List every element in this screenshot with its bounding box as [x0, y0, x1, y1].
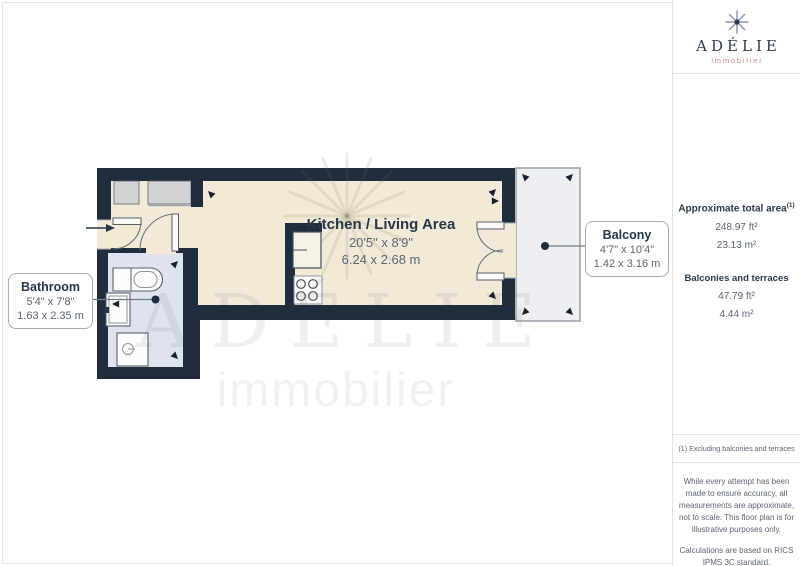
balcony-label: Balcony 4'7" x 10'4" 1.42 x 3.16 m — [585, 221, 669, 277]
brand-name: ADÉLIE — [692, 37, 781, 55]
room-dims-ft: 4'7" x 10'4" — [589, 243, 665, 257]
disclaimer: While every attempt has been made to ens… — [678, 476, 795, 536]
hob — [294, 276, 322, 304]
room-dims-m: 1.63 x 2.35 m — [12, 309, 89, 323]
bathtub — [113, 268, 163, 291]
room-dims-m: 1.42 x 3.16 m — [589, 257, 665, 271]
room-dims-ft: 5'4" x 7'8" — [12, 295, 89, 309]
floorplan-page: ADÉLIE immobilier Kitchen / Living Area … — [0, 0, 800, 566]
total-area-ft: 248.97 ft² — [715, 222, 757, 233]
sink-vanity — [104, 293, 130, 326]
room-dims-m: 6.24 x 2.68 m — [281, 251, 481, 268]
footnote-text: (1) Excluding balconies and terraces — [678, 444, 794, 453]
room-dims-ft: 20'5" x 8'9" — [281, 234, 481, 251]
closet-left — [114, 181, 139, 204]
footnote-ref: (1) — [787, 202, 795, 209]
balconies-ft: 47.79 ft² — [718, 291, 755, 302]
footnote: (1) Excluding balconies and terraces — [673, 435, 800, 463]
room-name: Kitchen / Living Area — [281, 215, 481, 234]
bathroom-label-dot — [152, 296, 160, 304]
bathroom-label: Bathroom 5'4" x 7'8" 1.63 x 2.35 m — [8, 273, 93, 329]
floorplan — [0, 0, 672, 566]
room-name: Bathroom — [12, 279, 89, 295]
balconies-m: 4.44 m² — [720, 309, 754, 320]
logo: ADÉLIE immobilier — [673, 0, 800, 74]
total-area-m: 23.13 m² — [717, 240, 756, 251]
snowflake-icon — [724, 9, 750, 35]
entry-door-leaf — [113, 218, 141, 225]
closet-right — [148, 181, 191, 204]
balcony-label-dot — [541, 242, 549, 250]
room-name: Balcony — [589, 227, 665, 243]
entry-doorway — [97, 220, 111, 249]
brand-subtitle: immobilier — [710, 56, 764, 65]
kitchen-living-label: Kitchen / Living Area 20'5" x 8'9" 6.24 … — [281, 215, 481, 268]
balcony-doorway — [502, 223, 516, 278]
balcony-door-leaf-top — [477, 222, 504, 229]
total-area-heading: Approximate total area(1) — [678, 202, 794, 214]
bathroom-door-leaf — [172, 214, 179, 251]
balcony-door-leaf-bottom — [477, 273, 504, 280]
info-sidebar: ADÉLIE immobilier Approximate total area… — [672, 0, 800, 566]
hallway-wall-stub — [191, 181, 203, 207]
standards-note: Calculations are based on RICS IPMS 3C s… — [678, 545, 795, 566]
shower — [117, 333, 148, 366]
area-summary: Approximate total area(1) 248.97 ft² 23.… — [673, 74, 800, 435]
legal: While every attempt has been made to ens… — [673, 463, 800, 566]
balconies-heading: Balconies and terraces — [684, 273, 788, 284]
